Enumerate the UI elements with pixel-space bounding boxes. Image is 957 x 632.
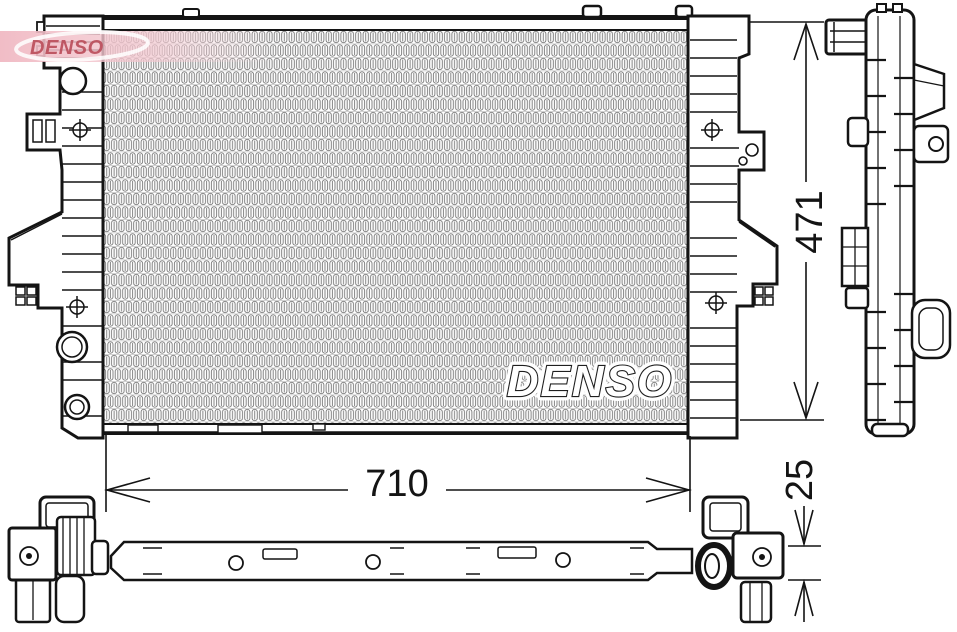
radiator-technical-drawing: DENSO DENSO [0,0,957,632]
right-tank [688,16,777,438]
connector-teeth [755,287,773,305]
side-body [866,10,914,434]
connector-teeth [16,287,36,305]
core-watermark: DENSO DENSO [507,357,673,406]
side-inlet-pipe [826,20,870,54]
denso-logo: DENSO [0,29,272,63]
front-view: DENSO DENSO [9,6,777,438]
dimension-width: 710 [106,432,690,512]
top-header [103,6,692,30]
svg-text:DENSO: DENSO [507,357,673,406]
bottom-left-plate [9,528,56,580]
side-view [826,4,950,436]
dim-height-label: 471 [789,190,831,253]
filler-port [60,68,86,94]
drain-port [65,395,89,419]
bottom-header [103,424,688,434]
dimension-depth: 25 [779,459,821,622]
drawing-canvas: DENSO DENSO [0,0,957,632]
dimension-height: 471 [740,22,831,420]
bottom-right-plate [733,533,783,578]
side-bracket-upper [914,64,944,120]
dim-width-label: 710 [365,463,428,505]
left-tank [9,16,103,438]
dim-depth-label: 25 [779,459,821,501]
bottom-view [9,497,783,622]
svg-text:DENSO: DENSO [30,37,104,59]
bottom-hose-port [698,545,730,587]
